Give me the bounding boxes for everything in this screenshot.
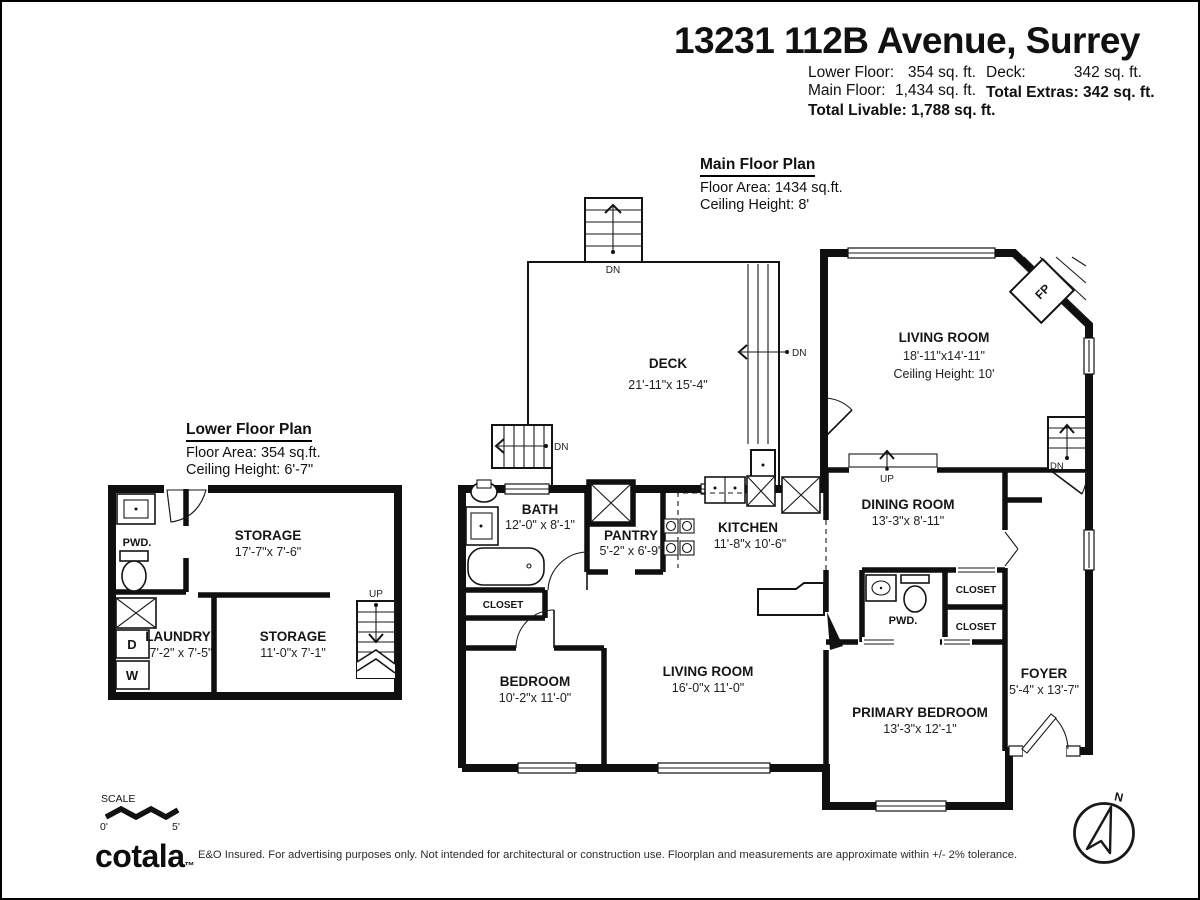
room-label-storage-lower: STORAGE	[260, 629, 327, 644]
total-extras-stat: Total Extras: 342 sq. ft.	[986, 84, 1142, 101]
shower	[589, 482, 633, 524]
deck-top-stairs: DN	[585, 198, 642, 276]
main-floor-stat-label: Main Floor:	[808, 82, 886, 99]
lr-stairs-dn-label: DN	[1050, 461, 1064, 472]
main-floor-title: Main Floor Plan	[700, 156, 815, 177]
lower-floor-stat-value: 354 sq. ft.	[908, 64, 976, 81]
room-label-storage-upper: STORAGE	[235, 528, 302, 543]
lower-floor-header: Lower Floor Plan Floor Area: 354 sq.ft. …	[186, 421, 321, 480]
room-ceiling-living-room: Ceiling Height: 10'	[893, 367, 994, 381]
main-floor-stat-value: 1,434 sq. ft.	[895, 82, 976, 99]
main-floor-labels: LIVING ROOM 18'-11"x14'-11" Ceiling Heig…	[483, 330, 1079, 736]
fireplace: FP	[1010, 259, 1074, 323]
pwd-toilet-tank	[901, 575, 929, 583]
room-dims-laundry: 7'-2" x 7'-5"	[150, 646, 213, 660]
compass-north-label: N	[1113, 789, 1124, 804]
floorplan-page: DN DN DN DECK 21'-11"x 15'-4	[0, 0, 1200, 900]
room-label-primary: PRIMARY BEDROOM	[852, 705, 988, 720]
scale-five-label: 5'	[172, 821, 180, 833]
deck-top-stairs-dn-label: DN	[606, 265, 620, 276]
deck-stat-value: 342 sq. ft.	[1074, 64, 1142, 81]
scale-label: SCALE	[101, 793, 135, 805]
washer-label: W	[126, 668, 139, 683]
deck-bottomleft-stairs: DN	[492, 425, 568, 468]
room-dims-dining: 13'-3"x 8'-11"	[872, 514, 944, 528]
lr-dn-stairs: DN	[1048, 417, 1086, 472]
main-floor-ceiling: Ceiling Height: 8'	[700, 197, 843, 215]
lower-floor-area: Floor Area: 354 sq.ft.	[186, 445, 321, 463]
deck-bl-stairs-dn-label: DN	[554, 442, 568, 453]
room-label-living-room-main: LIVING ROOM	[663, 664, 754, 679]
room-label-bedroom: BEDROOM	[500, 674, 571, 689]
main-floor-header: Main Floor Plan Floor Area: 1434 sq.ft. …	[700, 156, 843, 215]
lower-pwd-label: PWD.	[123, 537, 152, 549]
lower-floor-stat-label: Lower Floor:	[808, 64, 894, 81]
lower-toilet	[122, 561, 146, 591]
disclaimer-text: E&O Insured. For advertising purposes on…	[198, 849, 1017, 861]
lower-floor-ceiling: Ceiling Height: 6'-7"	[186, 462, 321, 480]
room-dims-kitchen: 11'-8"x 10'-6"	[714, 537, 786, 551]
room-dims-deck: 21'-11"x 15'-4"	[628, 378, 707, 392]
compass: N	[1075, 789, 1134, 862]
room-label-deck: DECK	[649, 356, 688, 371]
closet-label-2: CLOSET	[956, 585, 997, 596]
up-step-label: UP	[880, 474, 894, 485]
room-dims-living-room: 18'-11"x14'-11"	[903, 349, 985, 363]
scale-zero-label: 0'	[100, 821, 108, 833]
room-dims-primary: 13'-3"x 12'-1"	[883, 722, 956, 736]
room-dims-foyer: 5'-4" x 13'-7"	[1009, 683, 1079, 697]
deck-right-stairs-dn-label: DN	[792, 348, 806, 359]
lower-up-label: UP	[369, 589, 383, 600]
room-dims-living-room-main: 16'-0"x 11'-0"	[672, 681, 744, 695]
entry-door	[1022, 714, 1068, 758]
pwd-toilet	[904, 586, 926, 612]
dryer-label: D	[127, 637, 136, 652]
room-dims-pantry: 5'-2" x 6'-9"	[600, 544, 663, 558]
up-step: UP	[849, 451, 937, 485]
deck-area: DN DN DN DECK 21'-11"x 15'-4	[492, 198, 806, 486]
room-dims-bedroom: 10'-2"x 11'-0"	[499, 691, 571, 705]
lower-toilet-tank	[120, 551, 148, 561]
compass-needle-icon	[1087, 807, 1111, 853]
bathtub	[468, 548, 544, 585]
brand-text: cotala	[95, 838, 184, 874]
lower-floor-plan: PWD. D W UP	[112, 482, 398, 696]
bath-fixtures	[466, 480, 544, 585]
page-title: 13231 112B Avenue, Surrey	[674, 20, 1140, 62]
lower-pwd: PWD.	[117, 494, 155, 591]
closet-label-3: CLOSET	[956, 622, 997, 633]
scale-bar: SCALE 0' 5'	[100, 793, 180, 833]
floorplan-canvas: DN DN DN DECK 21'-11"x 15'-4	[0, 0, 1200, 900]
brand-tm: ™	[184, 861, 194, 872]
stats-left: Lower Floor: 354 sq. ft. Main Floor: 1,4…	[808, 64, 976, 119]
room-label-foyer: FOYER	[1021, 666, 1068, 681]
total-livable-stat: Total Livable: 1,788 sq. ft.	[808, 102, 976, 119]
room-label-dining: DINING ROOM	[862, 497, 955, 512]
closet-label-1: CLOSET	[483, 600, 524, 611]
room-dims-storage-upper: 17'-7"x 7'-6"	[235, 545, 301, 559]
deck-stat-label: Deck:	[986, 64, 1026, 81]
main-floor-area: Floor Area: 1434 sq.ft.	[700, 180, 843, 198]
brand-logo: cotala™	[95, 838, 194, 875]
room-label-kitchen: KITCHEN	[718, 520, 778, 535]
lower-floor-title: Lower Floor Plan	[186, 421, 312, 442]
room-label-pantry: PANTRY	[604, 528, 658, 543]
lower-stairs-up: UP	[357, 589, 395, 678]
kitchen-peninsula	[758, 583, 824, 615]
main-pwd-label: PWD.	[889, 615, 918, 627]
room-dims-storage-lower: 11'-0"x 7'-1"	[260, 646, 326, 660]
stats-right: Deck: 342 sq. ft. Total Extras: 342 sq. …	[986, 64, 1142, 101]
room-label-laundry: LAUNDRY	[145, 629, 211, 644]
main-pwd: PWD.	[866, 575, 929, 627]
stove	[664, 519, 694, 555]
room-label-living-room: LIVING ROOM	[899, 330, 990, 345]
deck-right-stairs: DN	[739, 264, 806, 444]
room-dims-bath: 12'-0" x 8'-1"	[505, 518, 575, 532]
room-label-bath: BATH	[522, 502, 559, 517]
